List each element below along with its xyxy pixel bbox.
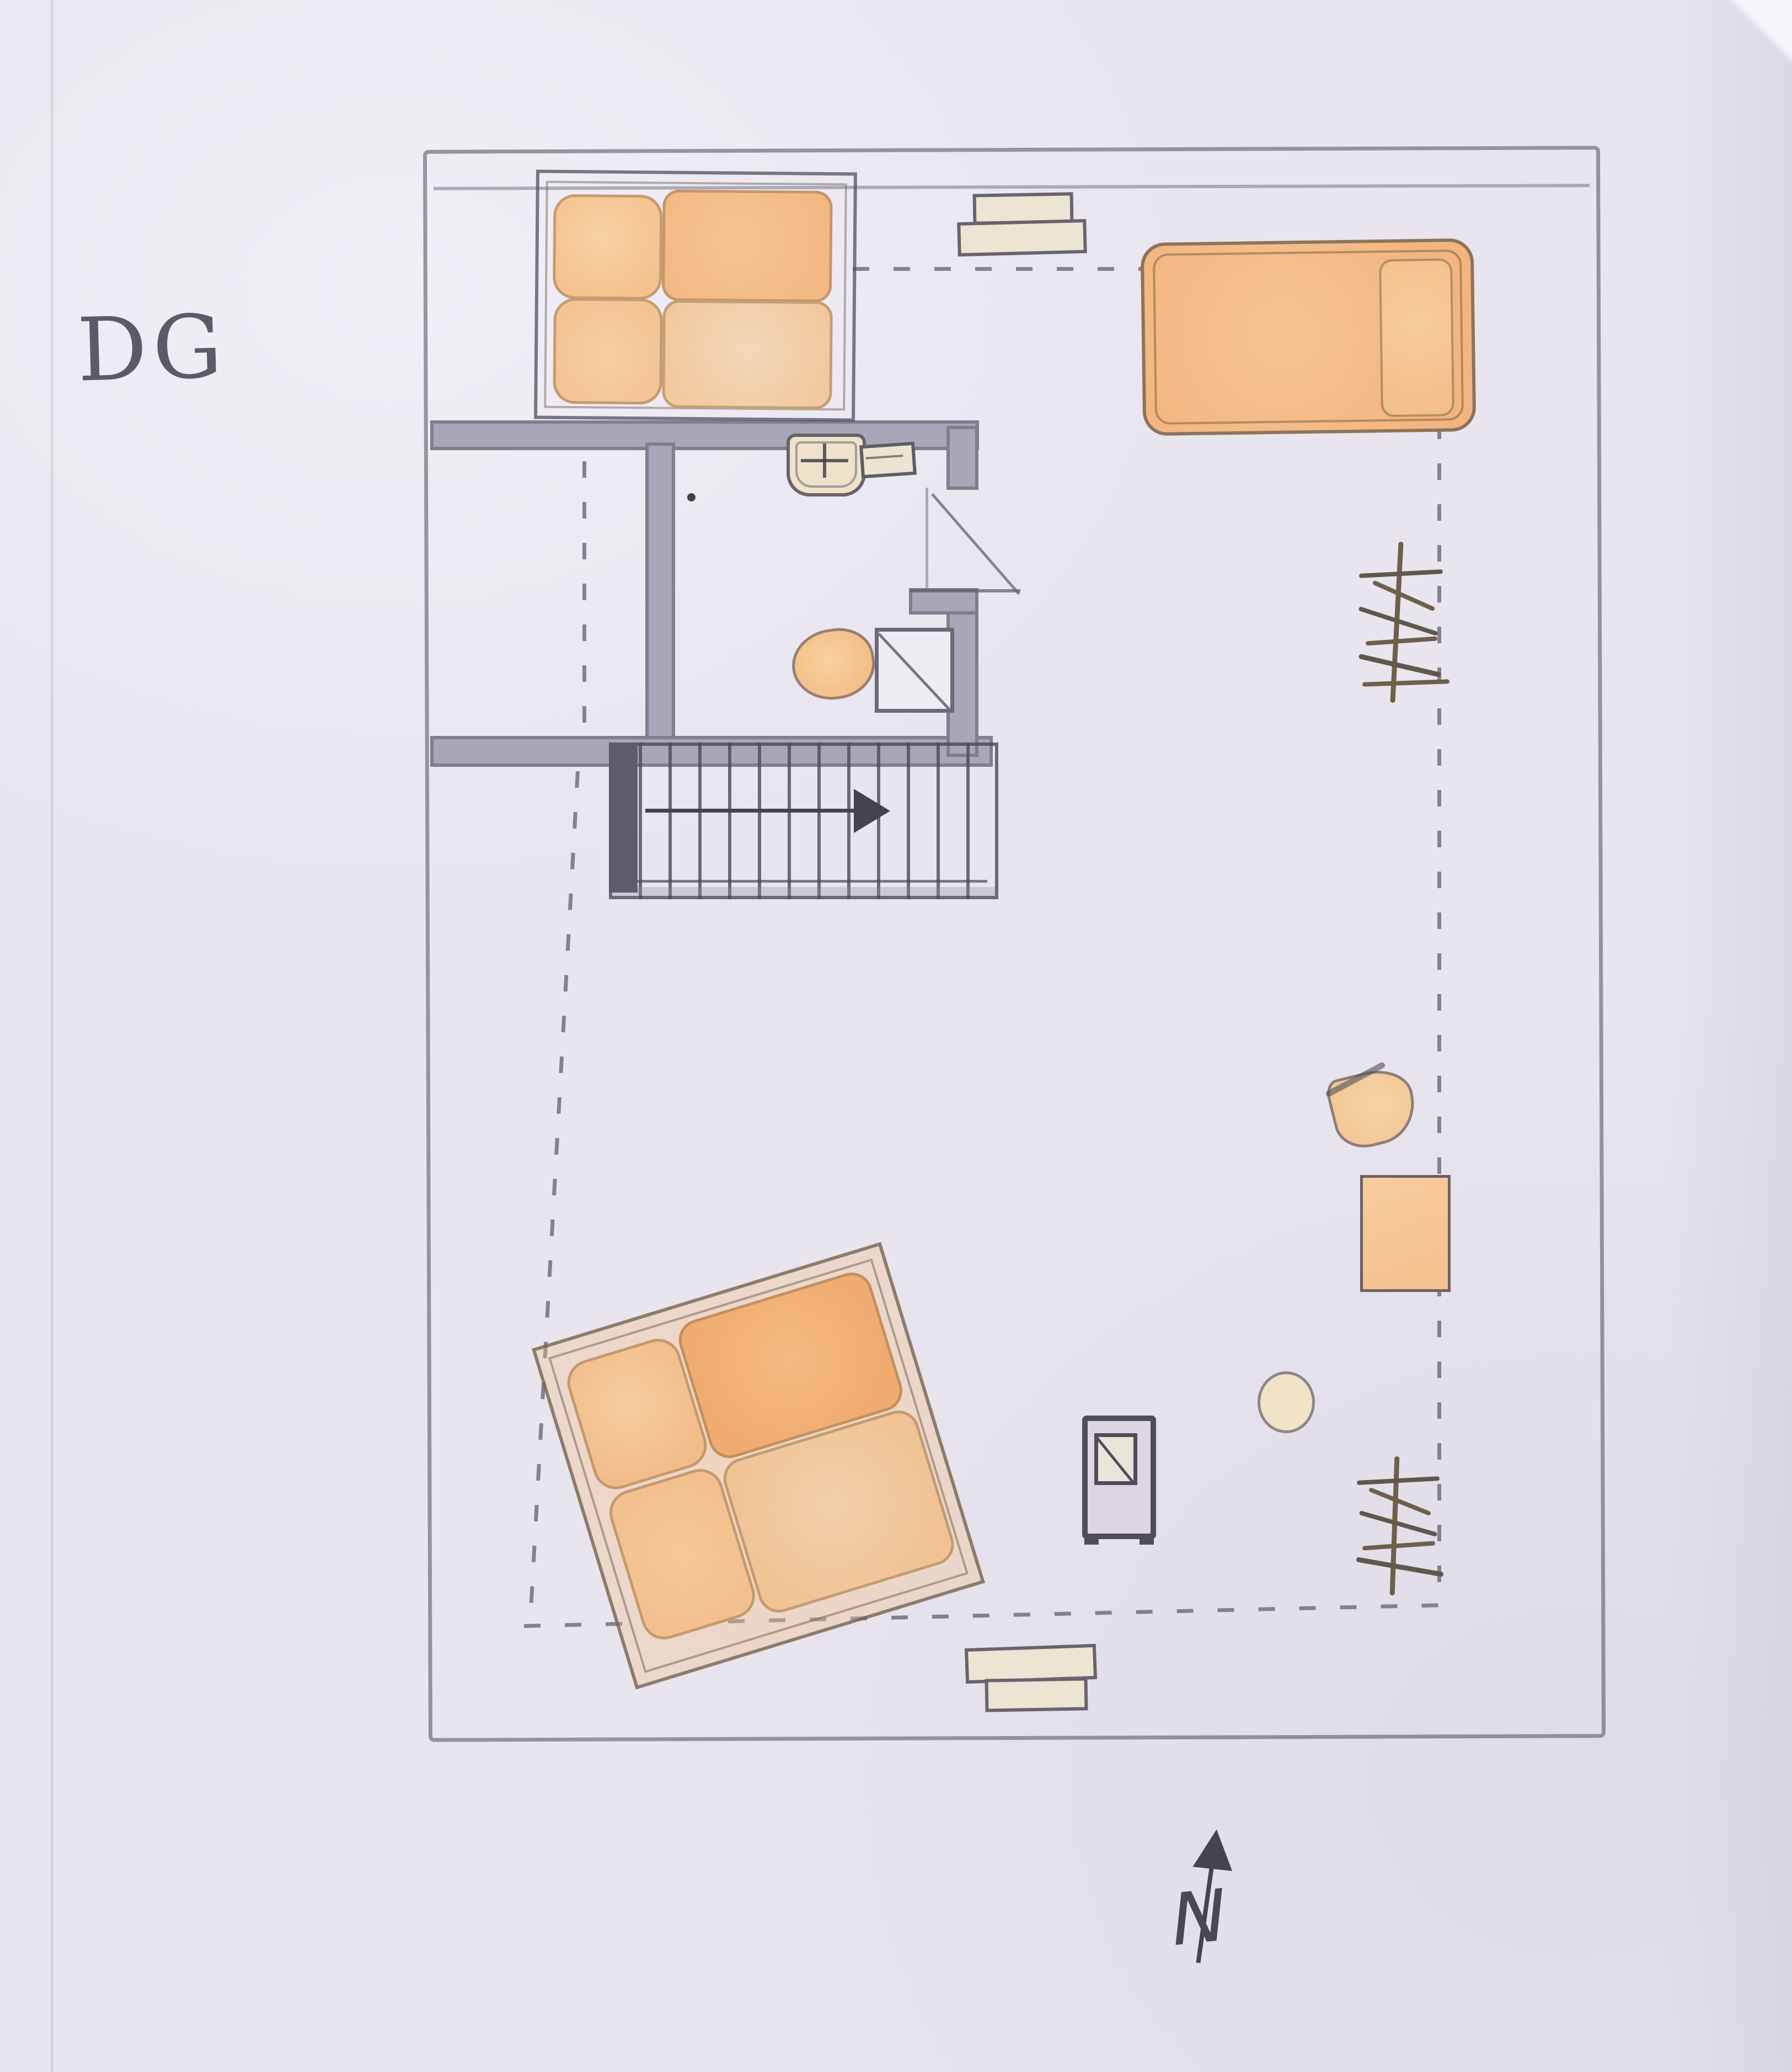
stove	[1082, 1416, 1156, 1539]
stove-door-square	[1094, 1433, 1137, 1485]
staircase-direction-arrow	[645, 789, 899, 833]
stove-foot	[1084, 1536, 1099, 1545]
wall-closet-bathroom-divider	[645, 442, 675, 745]
faucet-cross-vertical	[823, 444, 826, 478]
roof-line-left-upper	[582, 461, 586, 735]
pillow	[1379, 259, 1454, 417]
plant-branch	[1356, 1557, 1443, 1577]
wall-face-line-door-opening	[926, 488, 928, 592]
staircase-bottom-double-line	[620, 880, 987, 883]
plant-branch	[1372, 580, 1436, 612]
plant-branch	[1358, 654, 1441, 677]
mattress	[662, 300, 833, 409]
wall-shelf-top	[957, 219, 1087, 257]
pillow	[553, 298, 663, 405]
stove-door-diagonal	[1096, 1437, 1136, 1485]
north-letter: N	[1167, 1873, 1231, 1963]
plant-branch	[1368, 1487, 1431, 1516]
arrow-shaft	[645, 809, 860, 813]
plant-branch	[1362, 1541, 1435, 1550]
sink	[787, 434, 866, 496]
sink-inner-line	[795, 441, 857, 488]
roof-line-top-middle	[853, 267, 1142, 271]
north-arrow: N	[1167, 1829, 1272, 1978]
stool	[1258, 1371, 1315, 1433]
plant-branch	[1366, 636, 1437, 645]
plant-lower	[1365, 1456, 1431, 1600]
plant-upper	[1366, 541, 1432, 706]
soap-dish-inner-line	[866, 455, 903, 460]
mattress	[662, 189, 833, 302]
north-arrow-head	[1192, 1827, 1236, 1871]
pillow	[553, 194, 663, 300]
photographed-floor-plan-sketch: DG	[0, 0, 1792, 2072]
wall-bathroom-right-top-stub	[946, 426, 978, 490]
single-bed-top-right	[1141, 238, 1477, 436]
pencil-dot	[687, 493, 696, 501]
soap-dish	[859, 442, 917, 479]
arrow-head	[854, 789, 890, 833]
door-leaf-line	[910, 589, 1020, 592]
photo-corner-highlight	[1687, 0, 1792, 88]
staircase-left-post	[609, 745, 638, 893]
double-bed-top-left	[534, 169, 857, 421]
floor-label: DG	[76, 296, 229, 401]
table	[1360, 1175, 1451, 1292]
shower-diagonal-line	[878, 633, 954, 713]
shower	[875, 628, 954, 713]
roof-line-right	[1437, 259, 1441, 1605]
wall-shelf-bottom	[985, 1677, 1088, 1712]
stove-foot	[1140, 1536, 1154, 1545]
paper-crease	[51, 0, 54, 2072]
